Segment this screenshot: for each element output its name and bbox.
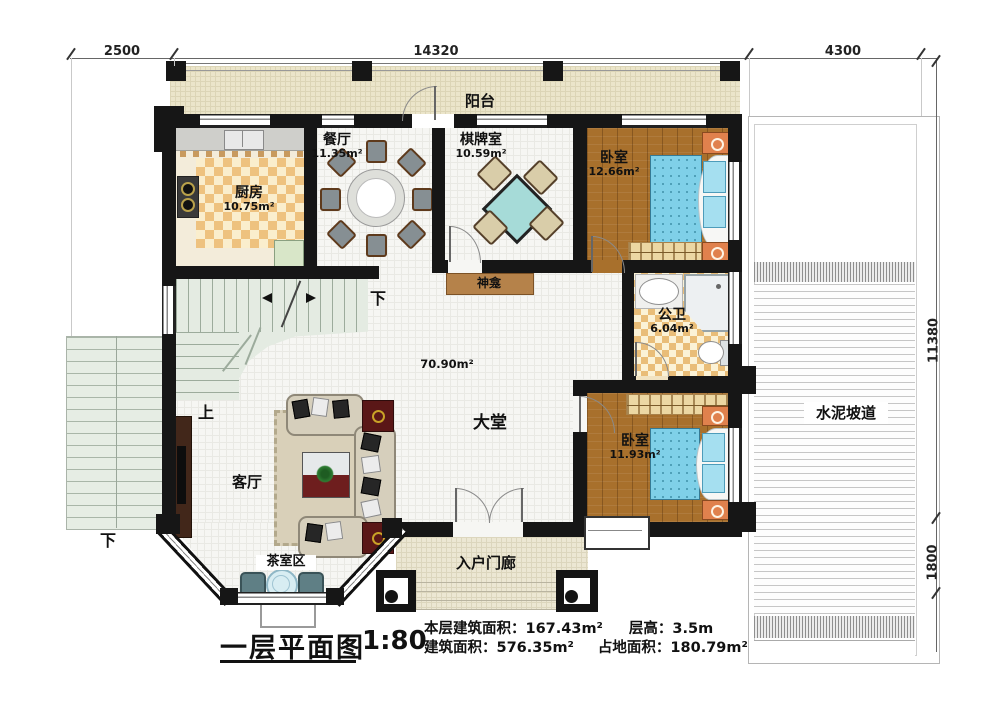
stairs-up-label: 上 (194, 404, 218, 422)
plan-stats-line2: 建筑面积：576.35m²占地面积：180.79m² (424, 636, 748, 657)
stat-storey-height: 层高：3.5m (629, 621, 713, 637)
plan-title-underline (220, 660, 356, 663)
bedroom2-door-leaf (579, 396, 581, 432)
balcony-column-2 (352, 61, 372, 81)
bay-corner-1 (156, 514, 180, 534)
ramp-hatch-bottom (754, 616, 915, 638)
bedroom2-nightstand (702, 406, 730, 426)
dim-right-upper: 11380 (927, 318, 942, 364)
hall-label: 大堂 (458, 414, 522, 433)
dining-label: 餐厅 11.35m² (305, 133, 369, 160)
guide-line (921, 58, 922, 116)
ramp-surface (754, 284, 915, 614)
sofa-cushion (325, 521, 343, 541)
porch-column-dot (565, 590, 578, 603)
living-label: 客厅 (222, 474, 272, 491)
sofa-cushion (292, 399, 311, 420)
coffee-table-plant (316, 465, 334, 483)
bedroom1-pillow (703, 196, 726, 228)
chess-label: 棋牌室 10.59m² (446, 133, 516, 160)
stairs-left-flight (176, 332, 239, 398)
exterior-stairs-down-label: 下 (96, 532, 120, 550)
dining-chair (366, 234, 387, 257)
tea-area-label: 茶室区 (252, 555, 320, 569)
bedroom1-nightstand (702, 132, 730, 154)
sofa-cushion (360, 432, 381, 452)
shrine-label: 神龛 (446, 277, 532, 290)
shower-head-dot (716, 284, 721, 289)
porch-column-left (376, 570, 416, 612)
bay-window-bottom (230, 592, 334, 605)
sofa-cushion (332, 399, 350, 419)
porch-column-dot (385, 590, 398, 603)
bedroom2-label: 卧室 11.93m² (602, 434, 668, 461)
hall-area-label: 70.90m² (412, 358, 482, 371)
stat-build-area: 建筑面积：576.35m² (424, 640, 574, 656)
ramp-hatch-top (754, 262, 915, 282)
guide-line (749, 58, 750, 116)
stairs-arrow-right (306, 293, 316, 303)
window-dining-top (322, 114, 354, 128)
porch-label: 入户门廊 (428, 555, 544, 572)
exterior-stairs-rail (116, 336, 117, 528)
dining-chair (320, 188, 341, 211)
balcony-column-1 (166, 61, 186, 81)
window-bedroom2-bottom-bay (584, 516, 650, 550)
dim-top-left: 2500 (92, 44, 152, 59)
stat-floor-area: 本层建筑面积：167.43m² (424, 621, 603, 637)
stairs-top-flight (176, 278, 368, 332)
bathroom-label: 公卫 6.04m² (642, 308, 702, 335)
wall-corner-topleft-v (154, 106, 168, 152)
main-door-leaf-left (455, 488, 457, 522)
sofa-cushion (305, 523, 323, 543)
bathroom-sink (639, 278, 679, 305)
bathroom-door-leaf (635, 342, 637, 376)
guide-line (71, 58, 72, 336)
window-bedroom2-right (728, 428, 742, 502)
window-bedroom1-top (622, 114, 706, 128)
floor-plan-canvas: 水泥坡道 下 阳台 (0, 0, 1000, 706)
balcony-label: 阳台 (450, 93, 510, 110)
wall-stub-ramp-lower (742, 502, 756, 532)
balcony-door-leaf (434, 86, 436, 120)
wall-chess-bedroom1 (573, 114, 587, 273)
bedroom2-nightstand (702, 500, 730, 520)
balcony-column-4 (720, 61, 740, 81)
chess-door-leaf (449, 226, 451, 262)
main-door-opening (453, 522, 523, 537)
tea-table-ring (272, 575, 290, 593)
stove-burner-1 (181, 182, 195, 196)
bay-corner-4 (382, 518, 402, 538)
balcony-column-3 (543, 61, 563, 81)
window-bedroom2-bottom-line (588, 530, 642, 531)
exterior-stairs (66, 336, 170, 530)
bedroom1-pillow (703, 161, 726, 193)
kitchen-appliance (274, 240, 304, 267)
bedroom1-bed (650, 155, 702, 245)
sofa-cushion (361, 477, 382, 497)
dim-right-lower: 1800 (926, 543, 941, 583)
wall-stub-ramp-upper (742, 366, 756, 394)
dining-chair (412, 188, 433, 211)
wall-bathroom-left (622, 260, 634, 388)
dining-table-top (356, 178, 396, 218)
stairs-down-label: 下 (366, 290, 390, 308)
bedroom1-door-leaf (591, 236, 593, 272)
wall-dining-chess (432, 114, 445, 260)
dim-top-right: 4300 (813, 44, 873, 59)
bedroom1-nightstand (702, 242, 730, 262)
dining-chair (366, 140, 387, 163)
dimension-line-top (70, 58, 938, 59)
stove-burner-2 (181, 198, 195, 212)
stat-land-area: 占地面积：180.79m² (598, 640, 748, 656)
plan-stats-line1: 本层建筑面积：167.43m²层高：3.5m (424, 617, 713, 638)
window-bedroom1-right (728, 162, 742, 240)
guide-line (174, 58, 175, 66)
ramp-label: 水泥坡道 (800, 405, 892, 422)
porch-column-right (556, 570, 598, 612)
bedroom1-wardrobe (628, 242, 702, 262)
side-table (362, 400, 394, 432)
window-bathroom-right (728, 272, 742, 344)
tv-screen (177, 446, 186, 504)
ramp-bottom-strip (754, 640, 915, 661)
wall-bottom-band (390, 522, 742, 537)
bedroom2-pillow (702, 433, 725, 462)
dim-top-middle: 14320 (406, 44, 466, 59)
bay-corner-2 (220, 588, 238, 605)
sofa-cushion (311, 397, 329, 417)
kitchen-sink-divider (242, 131, 243, 147)
kitchen-trim (180, 150, 304, 157)
window-chess-top (477, 114, 547, 128)
wall-kitchen-dining-bottom (162, 266, 379, 279)
balcony-railing (170, 63, 740, 71)
main-door-leaf-right (521, 488, 523, 522)
kitchen-sink (224, 130, 264, 150)
sofa-cushion (361, 455, 381, 474)
toilet-bowl (698, 341, 724, 364)
bay-corner-3 (326, 588, 344, 605)
wall-bedroom2-top (587, 380, 742, 393)
stairs-arrow-left (262, 293, 272, 303)
kitchen-label: 厨房 10.75m² (212, 186, 286, 213)
window-stairs-left (162, 286, 176, 334)
bedroom2-pillow (702, 464, 725, 493)
window-kitchen-top (200, 114, 270, 128)
bedroom1-label: 卧室 12.66m² (582, 151, 646, 178)
plan-scale: 1:80 (362, 626, 427, 656)
